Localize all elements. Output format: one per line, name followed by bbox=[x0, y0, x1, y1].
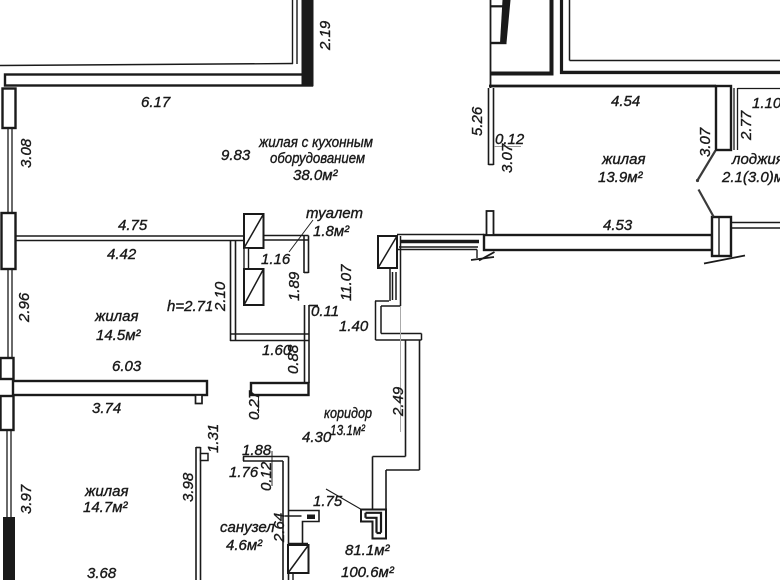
svg-text:3.08: 3.08 bbox=[18, 138, 35, 168]
svg-text:0.12: 0.12 bbox=[258, 461, 275, 491]
svg-text:санузел: санузел bbox=[220, 519, 275, 536]
svg-text:жилая: жилая bbox=[84, 483, 128, 500]
svg-text:оборудованием: оборудованием bbox=[270, 150, 365, 167]
svg-text:0.88: 0.88 bbox=[285, 344, 302, 374]
svg-text:6.03: 6.03 bbox=[112, 358, 142, 375]
svg-text:1.16: 1.16 bbox=[261, 251, 291, 268]
svg-text:0.27: 0.27 bbox=[246, 390, 263, 420]
svg-text:4.6м²: 4.6м² bbox=[226, 537, 263, 554]
svg-text:4.42: 4.42 bbox=[107, 246, 137, 263]
svg-text:4.75: 4.75 bbox=[118, 217, 148, 234]
svg-text:14.7м²: 14.7м² bbox=[83, 499, 128, 516]
svg-text:1.40: 1.40 bbox=[339, 318, 369, 335]
svg-text:3.98: 3.98 bbox=[180, 472, 197, 502]
svg-text:38.0м²: 38.0м² bbox=[293, 167, 338, 184]
svg-text:1.75: 1.75 bbox=[313, 493, 343, 510]
svg-text:2.49: 2.49 bbox=[390, 386, 407, 417]
svg-text:лоджия: лоджия bbox=[731, 151, 780, 168]
svg-text:1.76: 1.76 bbox=[229, 464, 259, 481]
svg-text:жилая с кухонным: жилая с кухонным bbox=[258, 134, 373, 151]
svg-text:2.96: 2.96 bbox=[16, 292, 33, 323]
svg-text:2.19: 2.19 bbox=[317, 20, 334, 51]
svg-text:жилая: жилая bbox=[94, 308, 138, 325]
svg-text:1.31: 1.31 bbox=[205, 424, 222, 453]
svg-text:6.17: 6.17 bbox=[141, 94, 171, 111]
svg-text:2.77: 2.77 bbox=[738, 110, 755, 141]
svg-text:2.1(3.0)м: 2.1(3.0)м bbox=[721, 169, 780, 186]
svg-text:13.1м²: 13.1м² bbox=[330, 422, 366, 439]
svg-text:h=2.71: h=2.71 bbox=[167, 298, 213, 315]
svg-text:3.07: 3.07 bbox=[697, 127, 714, 157]
svg-text:0.11: 0.11 bbox=[311, 303, 339, 320]
svg-text:1.89: 1.89 bbox=[286, 271, 303, 301]
svg-text:11.07: 11.07 bbox=[338, 264, 355, 301]
svg-text:2.64: 2.64 bbox=[271, 513, 288, 543]
svg-text:жилая: жилая bbox=[601, 151, 645, 168]
svg-text:14.5м²: 14.5м² bbox=[96, 327, 141, 344]
svg-text:9.83: 9.83 bbox=[221, 147, 251, 164]
svg-text:4.54: 4.54 bbox=[611, 93, 640, 110]
svg-text:1.8м²: 1.8м² bbox=[313, 223, 350, 240]
svg-text:2.10: 2.10 bbox=[212, 281, 229, 312]
svg-text:1.10: 1.10 bbox=[752, 95, 780, 112]
svg-text:13.9м²: 13.9м² bbox=[598, 169, 643, 186]
svg-text:4.30: 4.30 bbox=[302, 429, 332, 446]
svg-text:81.1м²: 81.1м² bbox=[345, 542, 390, 559]
svg-text:3.97: 3.97 bbox=[18, 484, 35, 514]
svg-text:3.74: 3.74 bbox=[92, 400, 121, 417]
svg-text:коридор: коридор bbox=[324, 405, 372, 422]
svg-text:3.07: 3.07 bbox=[499, 143, 516, 173]
svg-text:туалет: туалет bbox=[306, 205, 363, 222]
svg-text:100.6м²: 100.6м² bbox=[341, 564, 395, 580]
svg-text:5.26: 5.26 bbox=[469, 106, 486, 136]
svg-text:3.68: 3.68 bbox=[87, 565, 117, 580]
svg-text:4.53: 4.53 bbox=[603, 217, 633, 234]
svg-text:1.88: 1.88 bbox=[242, 442, 272, 459]
